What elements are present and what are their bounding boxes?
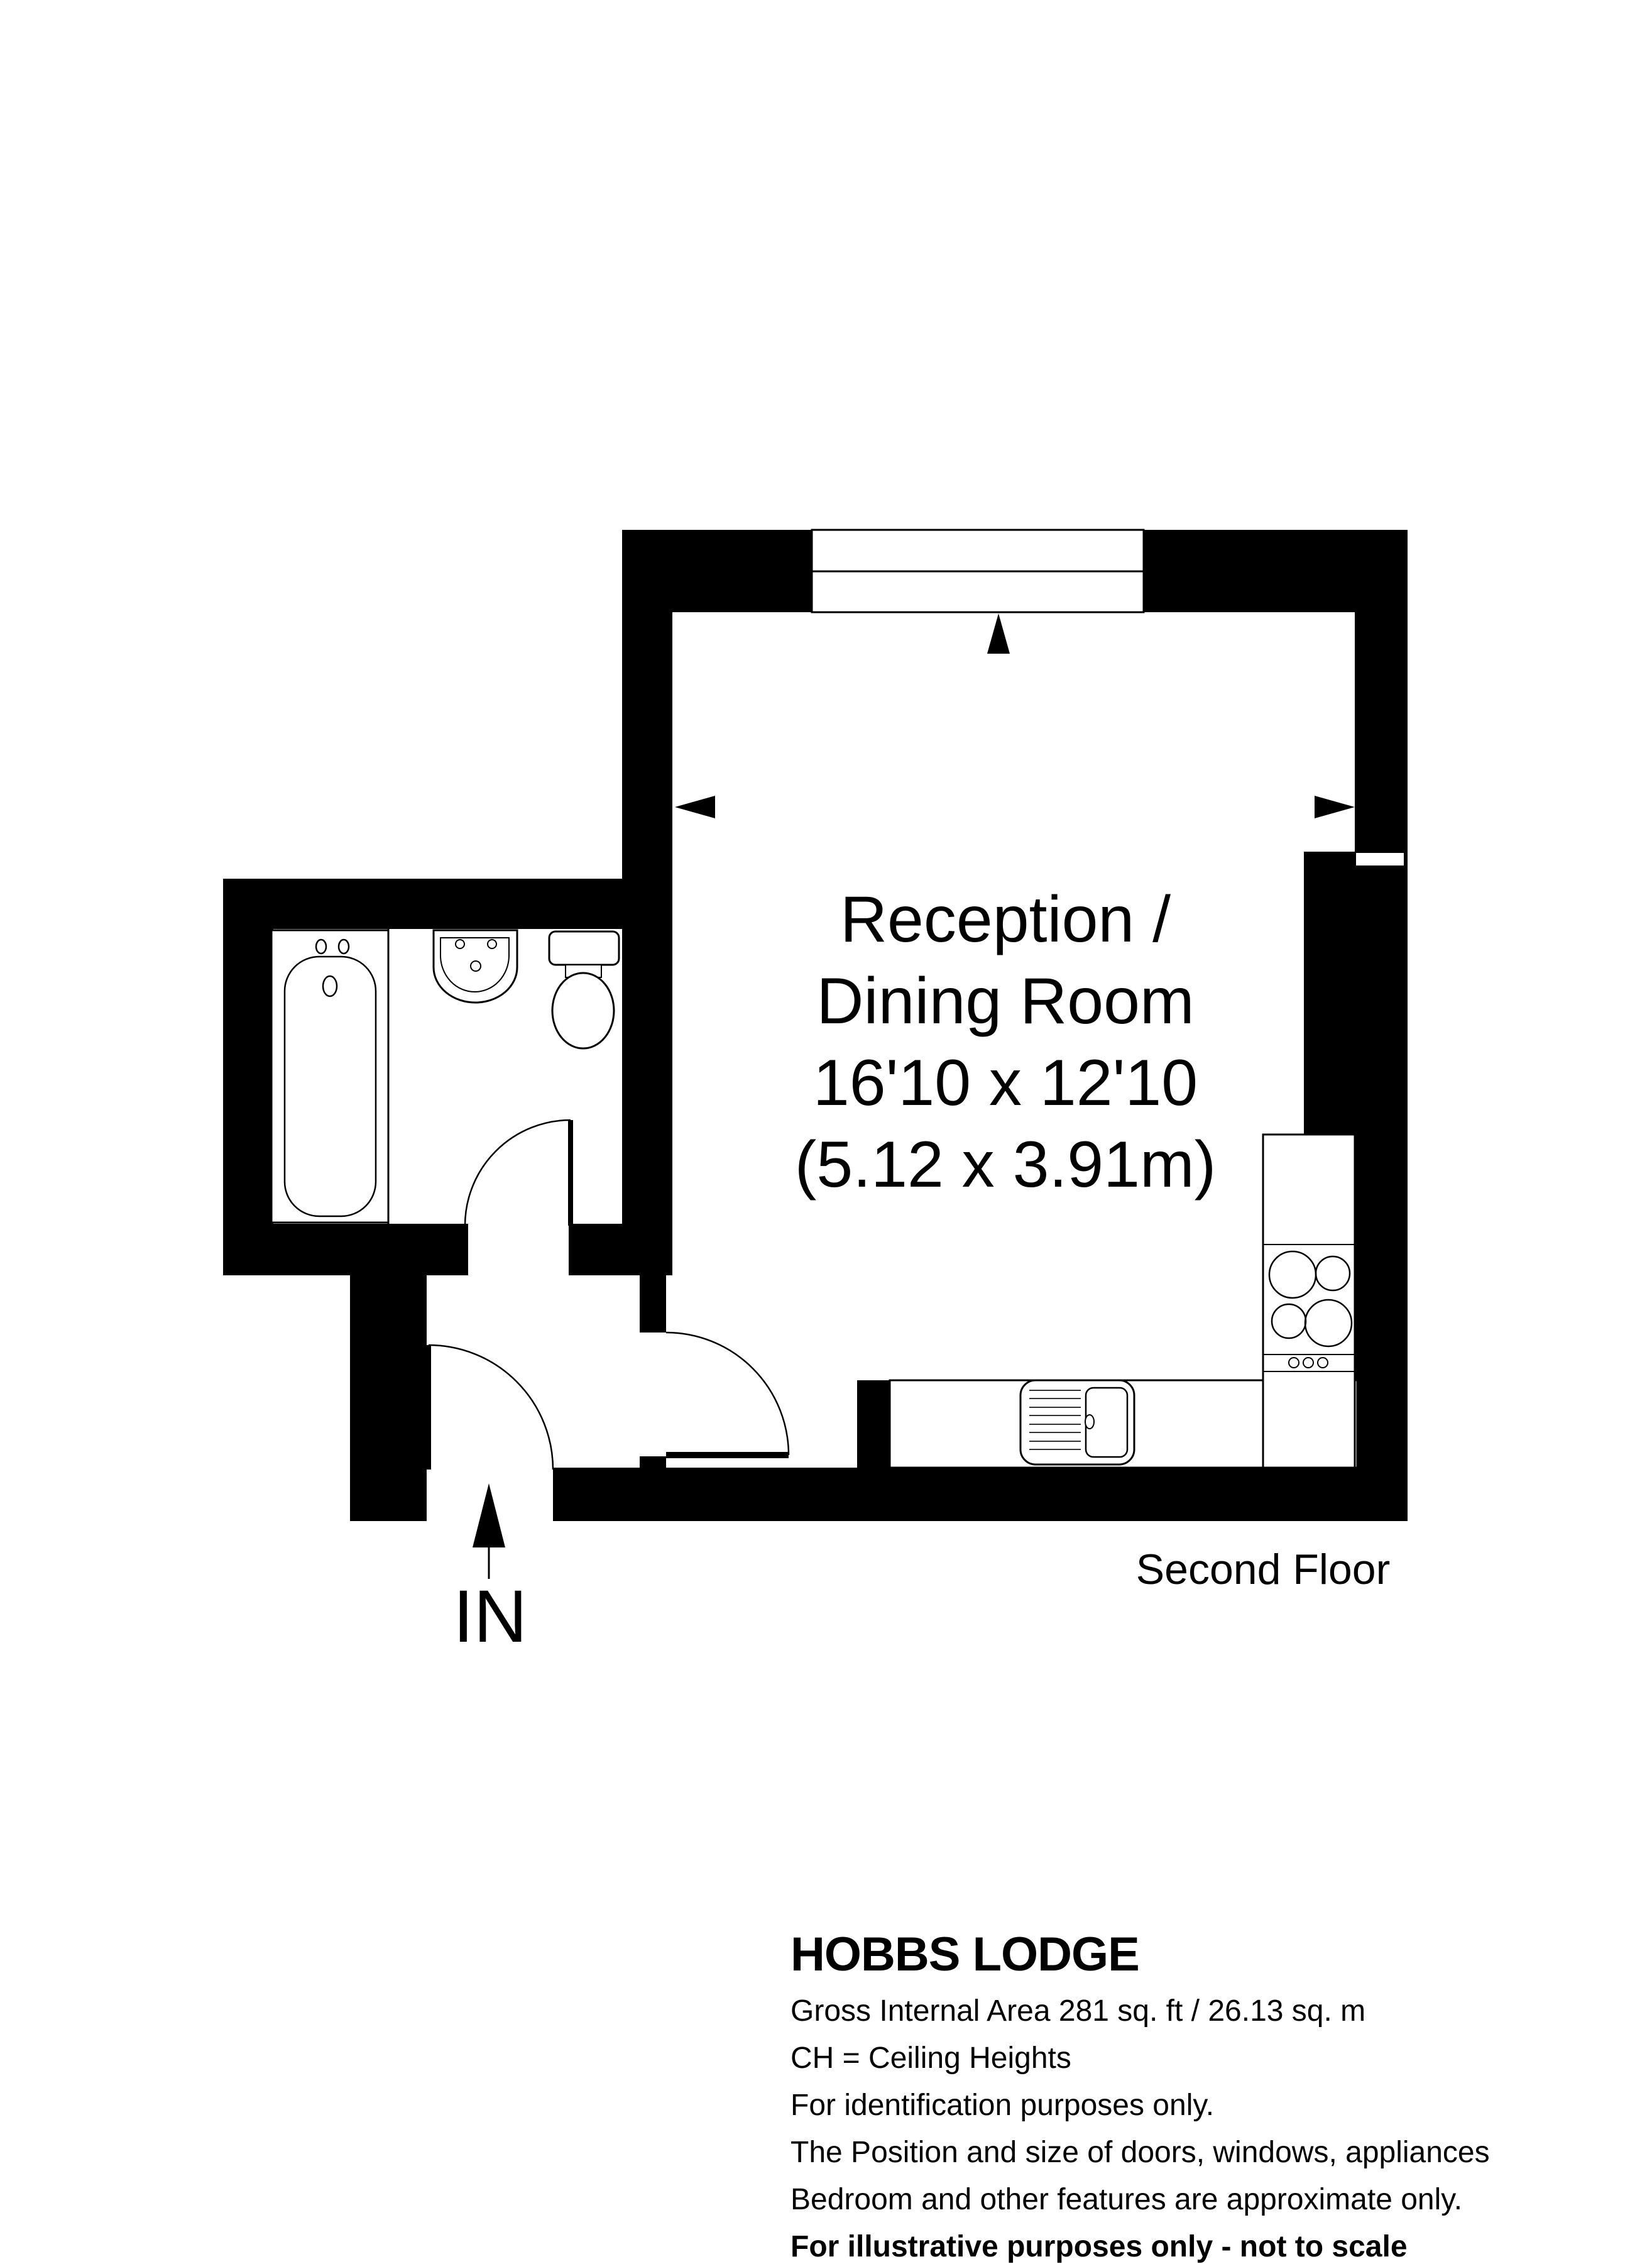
kitchen-sink <box>1020 1380 1134 1464</box>
toilet-cistern <box>549 931 619 965</box>
entrance-in-label: IN <box>437 1579 543 1654</box>
wall-bathroom-left <box>223 879 273 1275</box>
footer-disclaimer-line: Bedroom and other features are approxima… <box>790 2176 1607 2223</box>
wall-right <box>1355 530 1408 1521</box>
room-dimensions-metric: (5.12 x 3.91m) <box>704 1124 1307 1206</box>
floor-label: Second Floor <box>1119 1547 1408 1591</box>
reception-door <box>666 1333 789 1455</box>
room-name-line: Reception / <box>704 879 1307 960</box>
wall-bottom <box>553 1468 1408 1521</box>
sink-drain-icon <box>471 961 481 971</box>
room-label: Reception / Dining Room 16'10 x 12'10 (5… <box>704 879 1307 1206</box>
wall-right-jut <box>1304 852 1357 1135</box>
bathtub-tap-icon <box>339 940 349 953</box>
footer-scale-disclaimer: For illustrative purposes only - not to … <box>790 2223 1607 2264</box>
door-swing-arc <box>666 1333 789 1455</box>
wall-bathroom-bottom-right <box>569 1224 672 1275</box>
entrance-arrow-icon <box>473 1483 505 1579</box>
arrow-right-icon <box>1315 796 1355 818</box>
footer-identification-line: For identification purposes only. <box>790 2082 1607 2129</box>
wall-door-stub-lower <box>640 1456 666 1468</box>
sink-tap-icon <box>488 940 496 948</box>
pedestal-sink <box>434 930 517 1003</box>
arrow-left-icon <box>675 796 715 818</box>
entrance-door <box>429 1345 553 1470</box>
wall-bathroom-bottom-left <box>223 1224 468 1275</box>
room-dimensions-imperial: 16'10 x 12'10 <box>704 1042 1307 1124</box>
footer-area-line: Gross Internal Area 281 sq. ft / 26.13 s… <box>790 1987 1607 2035</box>
wall-door-stub-upper <box>640 1275 666 1333</box>
wall-jut-notch <box>1356 853 1404 865</box>
footer-notes: HOBBS LODGE Gross Internal Area 281 sq. … <box>790 1930 1607 2264</box>
bathtub <box>271 930 388 1223</box>
property-title: HOBBS LODGE <box>790 1930 1607 1980</box>
window <box>812 530 1144 612</box>
sink-tap-icon <box>1085 1415 1094 1429</box>
bathtub-drain-icon <box>323 976 337 996</box>
bathroom <box>271 929 619 1224</box>
toilet <box>549 931 619 1048</box>
wall-bathroom-top <box>223 879 672 929</box>
door-swing-arc <box>465 1120 571 1226</box>
footer-ch-line: CH = Ceiling Heights <box>790 2035 1607 2082</box>
door-swing-arc <box>429 1345 553 1470</box>
wall-sink-stub <box>857 1380 890 1468</box>
bathtub-tap-icon <box>316 940 326 953</box>
sink-tap-icon <box>456 940 464 948</box>
bathroom-door <box>465 1120 571 1226</box>
room-name-line: Dining Room <box>704 960 1307 1042</box>
toilet-bowl <box>552 973 614 1048</box>
wall-entry-left <box>350 1275 427 1521</box>
footer-disclaimer-line: The Position and size of doors, windows,… <box>790 2129 1607 2176</box>
floorplan-page: Reception / Dining Room 16'10 x 12'10 (5… <box>0 0 1652 2264</box>
arrow-up-icon <box>987 613 1010 654</box>
